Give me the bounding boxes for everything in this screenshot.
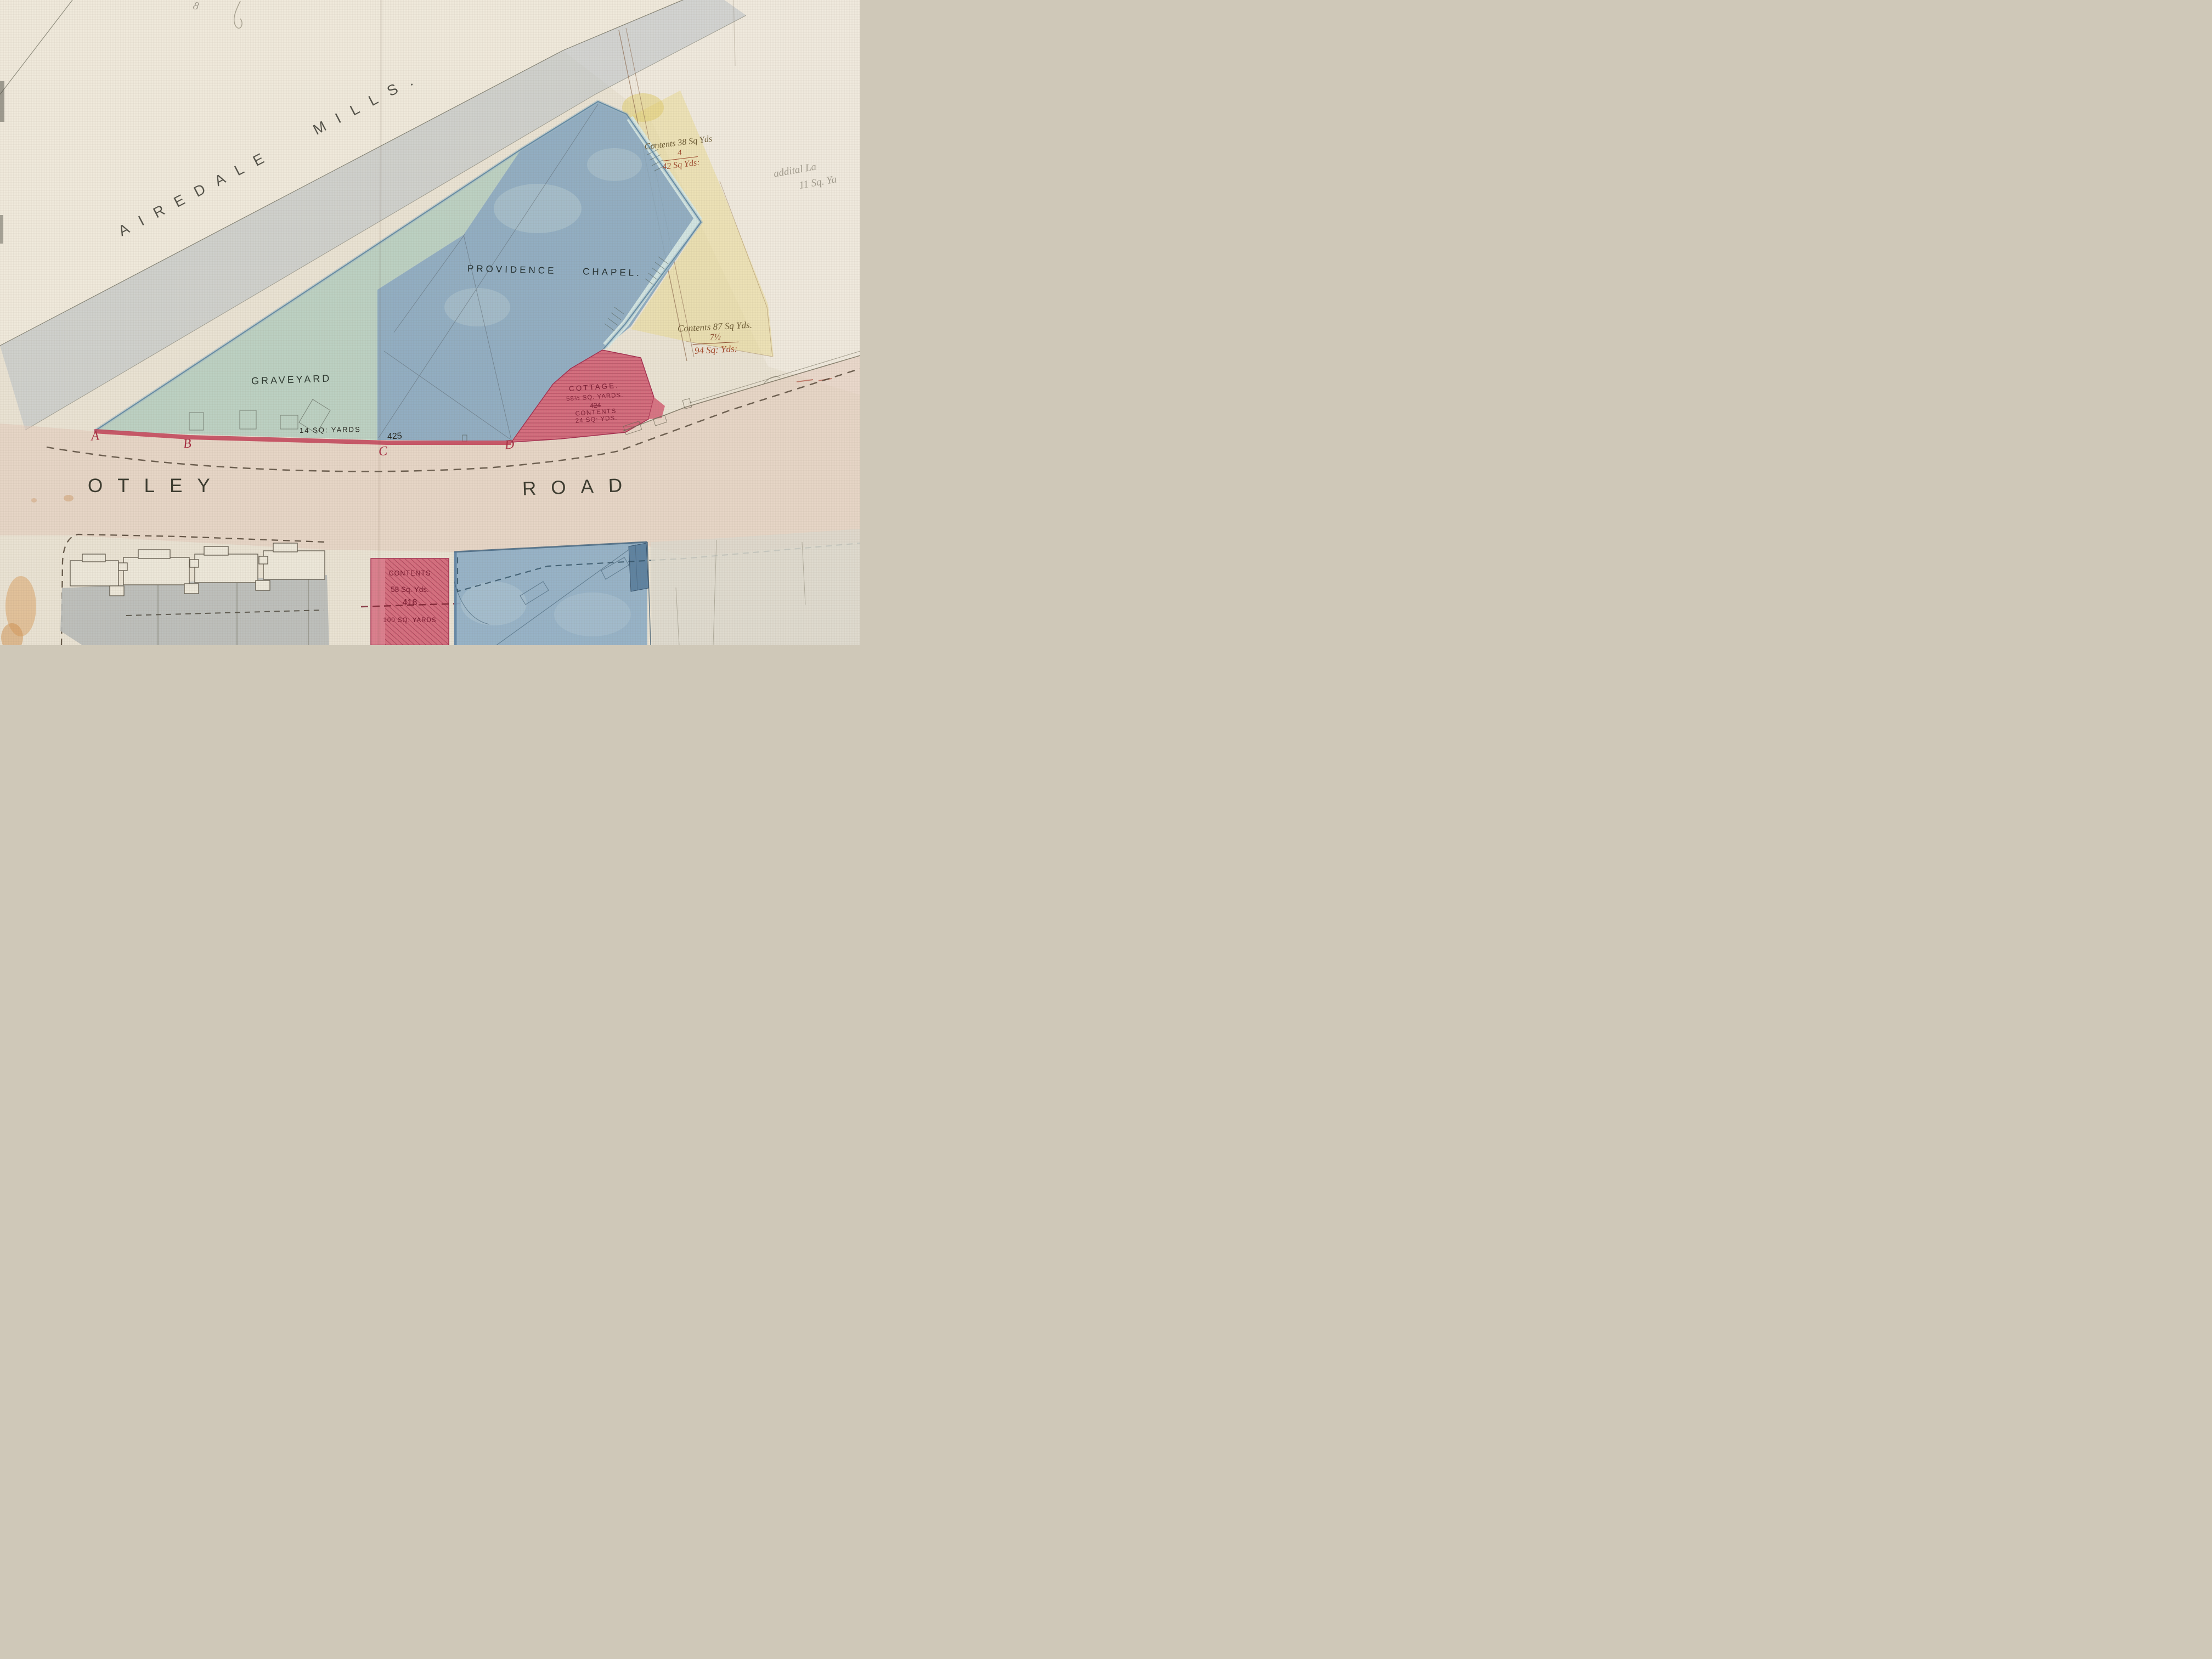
parcel-418-area: 100 SQ: YARDS <box>371 617 449 624</box>
graveyard-strip-area-label: 14 SQ: YARDS <box>300 425 361 435</box>
contents-87-annotation: Contents 87 Sq Yds. 7½ 94 Sq: Yds: <box>657 318 775 358</box>
blue-building <box>629 543 648 591</box>
parcel-418-contents-label: CONTENTS <box>371 569 449 577</box>
cottage-text-block: COTTAGE. 58½ SQ. YARDS. 424 CONTENTS 24 … <box>548 380 644 426</box>
parcel-418-text-block: CONTENTS 58 Sq. Yds. 418 100 SQ: YARDS <box>371 569 449 624</box>
reference-point-a: A <box>91 428 100 444</box>
parcel-418-contents-value: 58 Sq. Yds. <box>371 585 449 594</box>
plot-number-425: 425 <box>387 431 403 442</box>
road-name-west: OTLEY <box>88 475 225 497</box>
east-yard-area <box>651 529 860 645</box>
wash-highlight <box>494 184 582 233</box>
parcel-418-number: 418 <box>371 598 449 608</box>
wash-highlight <box>554 592 631 636</box>
contents-87-addition: 7½ <box>692 331 738 345</box>
reference-point-b: B <box>183 436 192 452</box>
road-name-east: ROAD <box>522 474 637 500</box>
reference-point-c: C <box>378 444 388 459</box>
reference-point-d: D <box>504 437 515 453</box>
plan-canvas: AIREDALE MILLS. PROVIDENCE CHAPEL. GRAVE… <box>0 0 860 645</box>
